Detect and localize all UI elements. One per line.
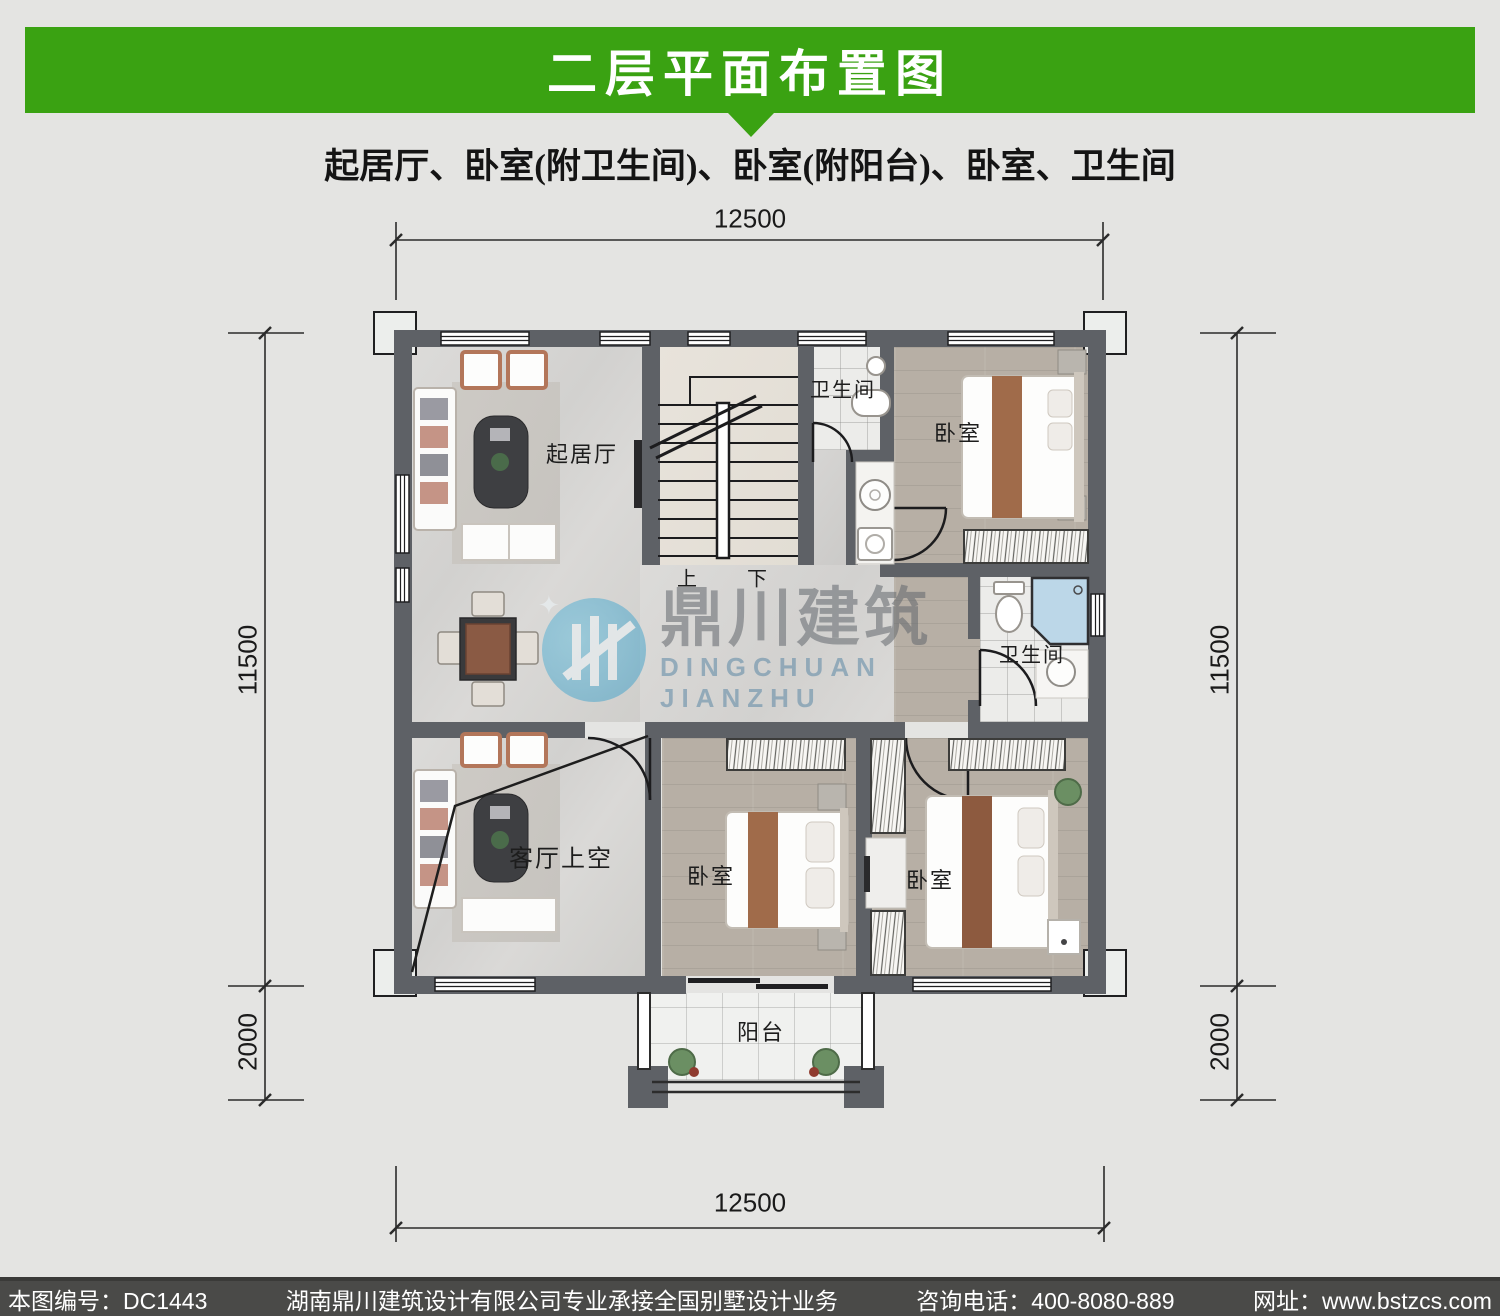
label-living-room: 起居厅 — [546, 437, 618, 469]
nightstand-icon — [1058, 350, 1086, 374]
dim-left-depth: 11500 — [233, 625, 264, 695]
dim-top-width: 12500 — [714, 204, 786, 235]
armchair-icon — [508, 734, 546, 766]
plant-icon — [1055, 779, 1081, 805]
dim-left-balcony: 2000 — [233, 1013, 264, 1071]
toilet-icon — [994, 582, 1024, 594]
staircase — [650, 377, 798, 558]
shower-icon — [1032, 578, 1088, 644]
footer-website: 网址：www.bstzcs.com — [1253, 1282, 1492, 1316]
label-bathroom-mid: 卫生间 — [999, 639, 1065, 668]
armchair-icon — [508, 352, 546, 388]
label-bedroom-bottom-right: 卧室 — [906, 863, 954, 895]
dim-bottom-width: 12500 — [714, 1188, 786, 1219]
footer-bar: 本图编号：DC1443 湖南鼎川建筑设计有限公司专业承接全国别墅设计业务 咨询电… — [0, 1277, 1500, 1316]
label-bedroom-top-right: 卧室 — [934, 416, 982, 448]
footer-phone: 咨询电话：400-8080-889 — [916, 1282, 1174, 1316]
balcony-sliding-door — [688, 978, 828, 989]
label-void-over-living: 客厅上空 — [509, 839, 613, 874]
label-stair-up: 上 — [677, 563, 699, 592]
armchair-icon — [462, 352, 500, 388]
armchair-icon — [462, 734, 500, 766]
tv-console-between-bedrooms — [864, 838, 906, 908]
dining-set — [438, 592, 538, 706]
dim-right-balcony: 2000 — [1205, 1013, 1236, 1071]
label-bathroom-top: 卫生间 — [810, 374, 876, 403]
nightstand-icon — [818, 784, 846, 810]
plant-icon — [669, 1049, 699, 1077]
label-stair-down: 下 — [747, 563, 769, 592]
tv-icon — [634, 440, 642, 508]
label-bedroom-bottom-mid: 卧室 — [687, 859, 735, 891]
laundry-fixtures — [856, 462, 894, 564]
footer-drawing-no: 本图编号：DC1443 — [8, 1282, 207, 1316]
bed-bottom-mid — [726, 784, 848, 950]
footer-company: 湖南鼎川建筑设计有限公司专业承接全国别墅设计业务 — [286, 1282, 838, 1316]
dim-right-depth: 11500 — [1205, 625, 1236, 695]
floor-plan-drawing — [0, 0, 1500, 1316]
plant-icon — [809, 1049, 839, 1077]
page: 二层平面布置图 起居厅、卧室(附卫生间)、卧室(附阳台)、卧室、卫生间 — [0, 0, 1500, 1316]
washing-machine-icon — [858, 528, 892, 560]
laundry-sink-icon — [860, 480, 890, 510]
sink-icon — [867, 357, 885, 375]
label-balcony: 阳台 — [737, 1015, 785, 1047]
dresser-icon — [1048, 920, 1080, 954]
tv-cabinet-icon — [462, 898, 556, 932]
